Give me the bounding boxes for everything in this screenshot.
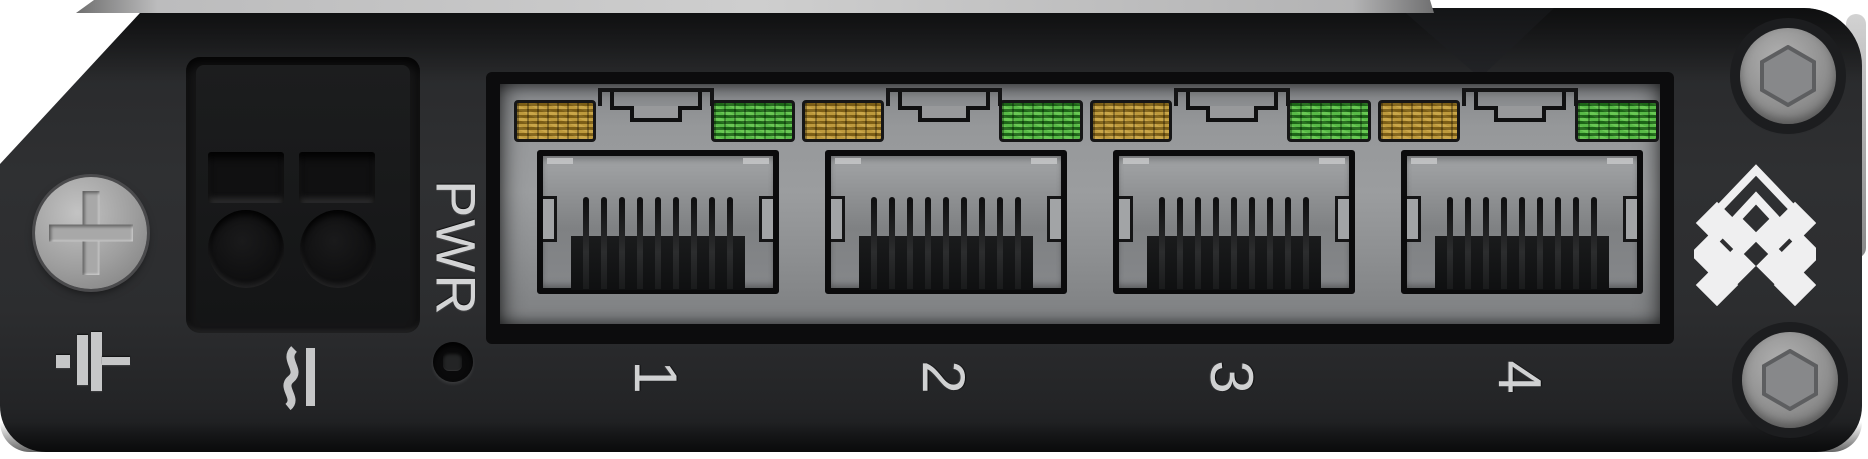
ethernet-port-4[interactable] [1376,84,1664,324]
jack-highlight [835,158,861,164]
ground-bar-long [91,332,102,391]
dc-bar [306,348,315,406]
terminal-screw-right[interactable] [300,210,376,288]
jack-top-edge-drop [1286,88,1290,106]
terminal-wire-slot-right[interactable] [299,152,375,203]
chassis-top-edge [76,0,1434,13]
rj45-jack[interactable] [1401,150,1643,294]
jack-top-edge-drop [598,88,602,106]
jack-side-spring [1623,196,1637,242]
jack-pins [1159,197,1309,289]
jack-top-edge-drop [1174,88,1178,106]
ethernet-port-bank [486,72,1674,344]
jack-highlight [1123,158,1149,164]
jack-top-edge-drop [1462,88,1466,106]
jack-latch-notch-inner [630,106,682,122]
jack-side-spring [831,196,845,242]
jack-highlight [547,158,573,164]
ac-dc-current-icon [278,346,318,410]
phillips-slot-horizontal [49,225,133,242]
jack-top-edge-drop [710,88,714,106]
terminal-wire-slot-left[interactable] [208,152,284,203]
port3-activity-led-orange [1090,100,1172,142]
jack-side-spring [1119,196,1133,242]
jack-pins [583,197,733,289]
jack-highlight [743,158,769,164]
device-front-panel: PWR [0,0,1868,459]
port-number-label-3: 3 [1204,349,1260,405]
port4-link-led-green [1575,100,1659,142]
jack-highlight [1319,158,1345,164]
ethernet-port-2[interactable] [800,84,1088,324]
ethernet-port-1[interactable] [512,84,800,324]
jack-top-edge-drop [998,88,1002,106]
hex-screw-icon [1742,332,1838,428]
jack-pins [1447,197,1597,289]
power-led-dome [443,352,462,371]
jack-side-spring [1407,196,1421,242]
power-led [433,342,473,382]
port-number-label-4: 4 [1492,349,1548,405]
port-number-label-2: 2 [916,349,972,405]
jack-latch-notch-inner [1206,106,1258,122]
jack-pins [871,197,1021,289]
phillips-screw-icon [35,177,147,289]
power-led-label: PWR [428,178,484,318]
jack-highlight [1031,158,1057,164]
ground-stem [102,357,130,365]
faceplate: PWR [0,8,1862,452]
jack-highlight [1411,158,1437,164]
port2-activity-led-orange [802,100,884,142]
port3-link-led-green [1287,100,1371,142]
port2-link-led-green [999,100,1083,142]
ethernet-port-3[interactable] [1088,84,1376,324]
ground-bar-medium [77,335,88,385]
jack-side-spring [1047,196,1061,242]
power-terminal-recess [186,57,420,333]
port1-link-led-green [711,100,795,142]
port4-activity-led-orange [1378,100,1460,142]
jack-top-edge-drop [1574,88,1578,106]
jack-side-spring [543,196,557,242]
jack-side-spring [1335,196,1349,242]
port1-activity-led-orange [514,100,596,142]
rj45-jack[interactable] [537,150,779,294]
rj45-jack[interactable] [1113,150,1355,294]
jack-latch-notch-inner [1494,106,1546,122]
jack-highlight [1607,158,1633,164]
jack-top-edge-drop [886,88,890,106]
ground-bar-short [56,355,70,368]
jack-side-spring [759,196,773,242]
port-shield-plate [500,84,1660,324]
port-number-label-1: 1 [628,349,684,405]
rj45-jack[interactable] [825,150,1067,294]
jack-latch-notch-inner [918,106,970,122]
terminal-screw-left[interactable] [208,210,284,288]
hex-screw-icon [1740,28,1836,124]
chevron-brand-logo-icon [1694,160,1816,306]
ac-squiggle [278,346,304,410]
bottom-bevel-shading [0,422,1862,452]
ground-icon [56,330,132,394]
